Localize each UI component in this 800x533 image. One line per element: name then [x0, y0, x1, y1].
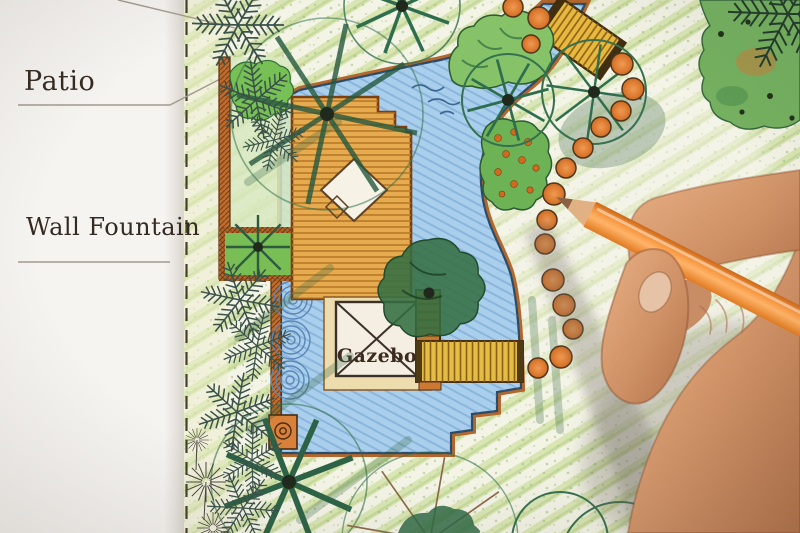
landscape-plan-drawing: Gazebo [0, 0, 800, 533]
photo-vignette [0, 0, 800, 533]
photo-of-landscape-plan: Gazebo [0, 0, 800, 533]
